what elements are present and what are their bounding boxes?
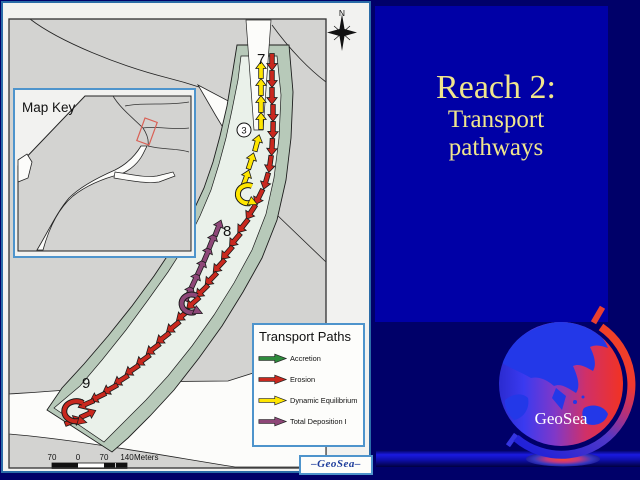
legend-title: Transport Paths xyxy=(259,329,360,344)
scale-tick-1: 70 xyxy=(48,453,57,462)
legend-label: Dynamic Equilibrium xyxy=(288,396,357,405)
geosea-globe-logo: GeoSea xyxy=(490,296,640,472)
globe-wordmark: GeoSea xyxy=(535,409,588,428)
legend-item-total-deposition: Total Deposition I xyxy=(258,411,360,432)
map-key-title: Map Key xyxy=(22,100,76,115)
compass-star xyxy=(327,14,357,51)
map-label-7: 7 xyxy=(257,51,265,68)
dynamic-equilibrium-arrow-icon xyxy=(258,395,288,406)
inset-map: Map Key xyxy=(15,90,194,256)
legend-item-erosion: Erosion xyxy=(258,369,360,390)
credit-box: –GeoSea– xyxy=(299,455,373,475)
scale-unit: Meters xyxy=(134,453,158,462)
legend-label: Total Deposition I xyxy=(288,417,347,426)
legend-label: Erosion xyxy=(288,375,315,384)
map-label-9: 9 xyxy=(82,375,90,392)
compass-rose: N xyxy=(327,8,357,51)
map-label-3: 3 xyxy=(241,126,246,137)
scale-tick-4: 140 xyxy=(120,453,134,462)
accretion-arrow-icon xyxy=(258,353,288,364)
accent-panel xyxy=(375,6,608,322)
globe-axis-pin-top xyxy=(591,306,605,325)
slide: Reach 2: Transport pathways xyxy=(0,0,640,480)
slide-title-line2: Transport xyxy=(380,106,612,134)
slide-title: Reach 2: Transport pathways xyxy=(380,70,612,162)
legend-item-dynamic-equilibrium: Dynamic Equilibrium xyxy=(258,390,360,411)
map-key-inset: Map Key xyxy=(13,88,196,258)
slide-title-line3: pathways xyxy=(380,134,612,162)
scale-tick-2: 0 xyxy=(76,453,81,462)
legend-box: Transport Paths Accretion Erosion Dynami… xyxy=(252,323,365,447)
legend-item-accretion: Accretion xyxy=(258,348,360,369)
inset-land xyxy=(18,96,191,251)
total-deposition-arrow-icon xyxy=(258,416,288,427)
slide-title-line1: Reach 2: xyxy=(380,70,612,106)
erosion-arrow-icon xyxy=(258,374,288,385)
legend-label: Accretion xyxy=(288,354,321,363)
scale-tick-3: 70 xyxy=(100,453,109,462)
map-label-8: 8 xyxy=(223,223,231,240)
